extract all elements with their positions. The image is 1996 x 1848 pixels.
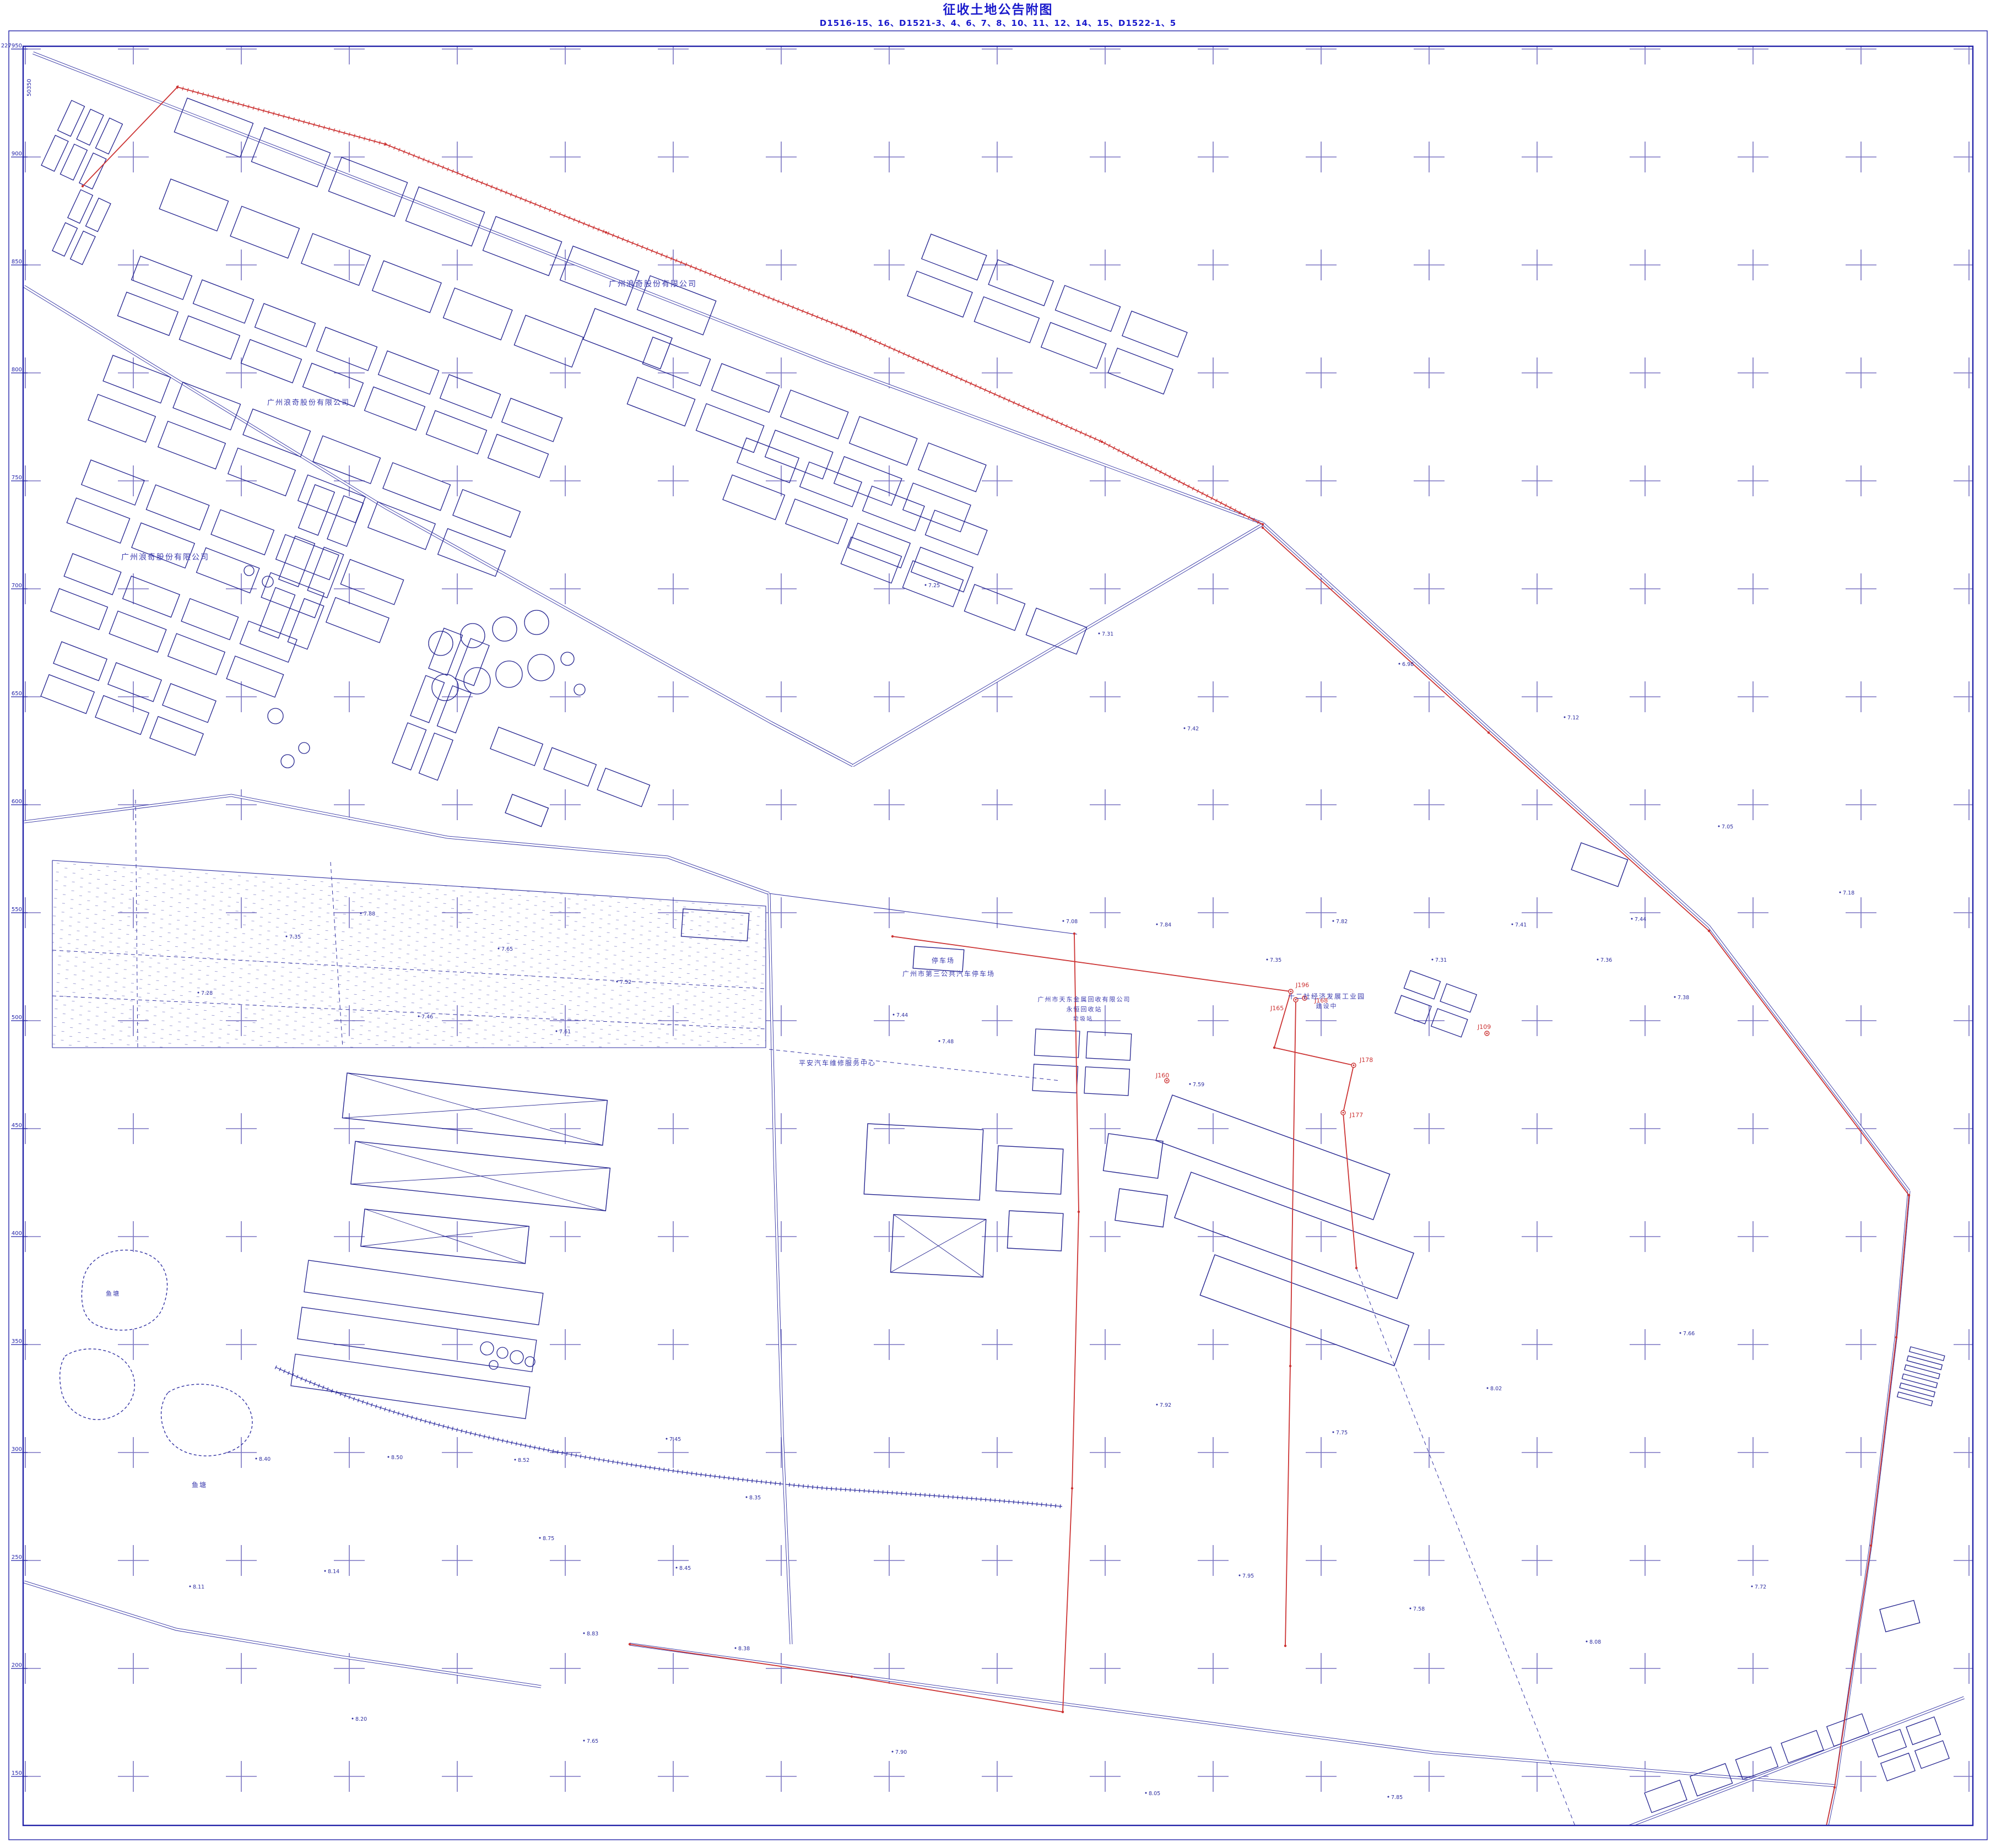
spot-elevation: 7.08 [1066,919,1078,925]
red-boundary-line [177,87,1263,524]
spot-elevation: 7.31 [1102,631,1113,637]
building [1880,1600,1920,1632]
left-axis-label: 550 [12,907,22,913]
left-axis-label: 800 [12,367,22,373]
red-boundary-line [1263,528,1909,1195]
spot-elevation: 7.59 [1193,1082,1204,1088]
building-block [1032,1029,1132,1096]
spot-elevation: 8.52 [518,1457,529,1464]
building-block [52,189,111,264]
building [996,1146,1063,1194]
map-label: 鱼塘 [106,1289,120,1297]
spot-elevation: 7.66 [1683,1331,1695,1337]
spot-elevation: 7.12 [1567,715,1579,721]
boundary-point-label: J177 [1349,1112,1363,1119]
map-sheet: 征收土地公告附图 D1516-15、16、D1521-3、4、6、7、8、10、… [0,0,1996,1848]
left-axis-label: 850 [12,259,22,265]
spot-elevation: 7.95 [1242,1573,1254,1579]
map-label: 鱼塘 [192,1481,207,1489]
left-axis-label: 700 [12,583,22,589]
map-label: 广州市天东金属回收有限公司 [1038,995,1131,1003]
map-label: 广州市第三公共汽车停车场 [902,969,995,978]
left-axis-label: 500 [12,1015,22,1021]
map-label: 平安汽车维修服务中心 [799,1059,876,1067]
axis-labels: 2279509008508007507006506005505004504003… [1,43,33,1776]
spot-elevation: 7.46 [421,1014,433,1020]
left-axis-label: 300 [12,1446,22,1453]
tank-circle [496,661,522,687]
spot-elevation: 7.41 [1515,922,1527,928]
building-block [841,537,1086,654]
spot-elevation: 7.35 [289,934,301,940]
boundary-point: J177 [1341,1110,1363,1119]
map-label: 广州浪奇股份有限公司 [121,552,209,562]
building-block [41,642,216,755]
building-block [1645,1714,1869,1812]
ponds [60,1250,252,1456]
red-boundary-line [83,87,177,186]
boundary-point: J196 [1289,982,1309,994]
spot-elevation: 7.65 [501,946,513,952]
spot-elevation: 7.38 [1678,995,1689,1001]
spot-elevation: 8.45 [679,1565,691,1571]
left-axis-label: 750 [12,475,22,481]
spot-elevation: 8.83 [587,1631,598,1637]
building-block [907,234,1187,394]
spot-elevation: 8.75 [543,1536,554,1542]
building [583,308,672,369]
building-block [259,485,364,649]
building [1200,1255,1409,1366]
left-axis-label: 350 [12,1338,22,1345]
left-axis-label: 650 [12,691,22,697]
left-axis-label: 227950 [1,43,22,49]
spot-elevation: 7.05 [1722,824,1733,830]
spot-elevation: 7.36 [1600,957,1612,963]
spot-elevation: 7.28 [201,990,213,996]
building [361,1209,529,1264]
field-parcel [52,860,766,1048]
boundary-point: J109 [1477,1023,1491,1036]
tank-circle [489,1361,498,1369]
road [630,1644,1836,1786]
embankment-lines [275,1367,1062,1506]
left-axis-label: 900 [12,151,22,157]
spot-elevation: 7.35 [1270,957,1281,963]
building-block [392,628,489,780]
building-block [88,355,521,576]
spot-elevation: 8.38 [738,1646,750,1652]
spot-elevation: 7.44 [1635,917,1646,923]
spot-elevation: 7.42 [1187,726,1199,732]
building-block [41,100,122,189]
spot-elevation: 7.90 [895,1749,907,1755]
tank-circle [574,684,585,695]
tank-circle [524,610,549,635]
spot-elevation: 8.35 [749,1495,761,1501]
spot-elevation: 8.05 [1149,1791,1160,1797]
pond-outline [60,1349,135,1419]
tank-circle [464,668,490,694]
building-block [174,98,716,335]
top-axis-label: 50350 [26,79,33,96]
tank-circle [461,624,485,648]
map-label: 广州浪奇股份有限公司 [609,279,697,289]
building [505,794,548,827]
tank-circle [268,708,283,724]
spot-elevation: 7.72 [1755,1584,1766,1590]
red-boundary-line [1274,991,1356,1268]
boundary-point-label: J160 [1155,1072,1169,1079]
map-label: 十二社经济发展工业园 [1288,992,1365,1000]
spot-elevations: 7.087.847.827.417.447.357.317.367.387.88… [190,583,1855,1801]
tank-circle [528,654,554,681]
boundary-point: J160 [1155,1072,1169,1083]
map-label: 永恒回收站 [1067,1005,1102,1013]
left-axis-label: 150 [12,1770,22,1776]
left-axis-label: 600 [12,799,22,805]
building [1571,843,1627,887]
spot-elevation: 7.82 [1336,919,1348,925]
spot-elevation: 7.84 [1160,922,1171,928]
building [891,1215,986,1277]
spot-elevation: 8.08 [1589,1639,1601,1645]
spot-elevation: 7.45 [669,1437,681,1443]
spot-elevation: 7.88 [364,911,375,917]
left-axis-label: 400 [12,1231,22,1237]
tank-circle [510,1351,523,1364]
building [1007,1211,1063,1251]
spot-elevation: 8.50 [391,1455,403,1461]
building-block [117,256,562,478]
road [1263,523,1909,1191]
left-axis-label: 450 [12,1123,22,1129]
building-block [291,1260,543,1419]
tank-circle [480,1342,494,1355]
pond-outline [161,1384,252,1456]
tank-circle [299,743,310,754]
pond-outline [82,1250,167,1330]
boundary-point-label: J196 [1295,982,1309,989]
spot-elevation: 8.14 [328,1569,339,1575]
boundary-point: J178 [1351,1056,1373,1067]
spot-elevation: 7.25 [928,583,940,589]
spot-elevation: 7.61 [559,1029,571,1035]
spot-elevation: 7.18 [1843,890,1854,896]
spot-elevation: 8.20 [355,1716,367,1722]
left-axis-label: 200 [12,1662,22,1668]
tank-circle [493,617,517,641]
spot-elevation: 8.40 [259,1456,271,1462]
left-axis-label: 250 [12,1554,22,1560]
building [864,1124,983,1200]
red-boundary-line [1285,1000,1296,1646]
spot-elevation: 8.02 [1490,1386,1502,1392]
map-label: 垃圾站 [1073,1015,1093,1022]
map-label: 建设中 [1316,1002,1338,1010]
map-canvas: J196J165J168J160J178J177J1097.087.847.82… [0,0,1996,1848]
map-content: J196J165J168J160J178J177J1097.087.847.82… [10,34,1984,1845]
boundary-point-label: J109 [1477,1023,1491,1031]
building-block [1897,1347,1945,1406]
tank-circle [429,631,453,655]
spot-elevation: 7.92 [1160,1402,1171,1408]
tank-circle [497,1347,508,1358]
spot-elevation: 7.31 [1435,957,1447,963]
spot-elevation: 7.85 [1391,1795,1403,1801]
tank-circle [561,652,574,665]
map-label: 停车场 [932,956,955,964]
spot-elevation: 8.11 [193,1584,204,1590]
tank-circle [281,755,294,768]
building-block [51,554,297,697]
spot-elevation: 7.58 [1413,1606,1425,1612]
boundary-point-label: J178 [1359,1056,1373,1064]
building [1115,1189,1167,1227]
building [351,1141,610,1211]
spot-elevation: 7.52 [620,979,631,985]
building-block [1872,1717,1949,1781]
building-block [1395,971,1476,1037]
tank-circle [262,576,273,587]
building [342,1073,607,1145]
spot-elevation: 7.65 [587,1738,598,1744]
red-boundary-line [1063,934,1079,1712]
map-label: 广州浪奇股份有限公司 [267,398,350,407]
road [24,1582,541,1687]
spot-elevation: 7.75 [1336,1430,1348,1436]
building [1104,1134,1163,1178]
road [769,893,791,1644]
spot-elevation: 7.44 [896,1012,908,1018]
spot-elevation: 7.48 [942,1039,954,1045]
tank-circle [244,566,254,576]
spot-elevation: 6.98 [1402,662,1414,668]
boundary-point-label: J165 [1270,1005,1284,1012]
